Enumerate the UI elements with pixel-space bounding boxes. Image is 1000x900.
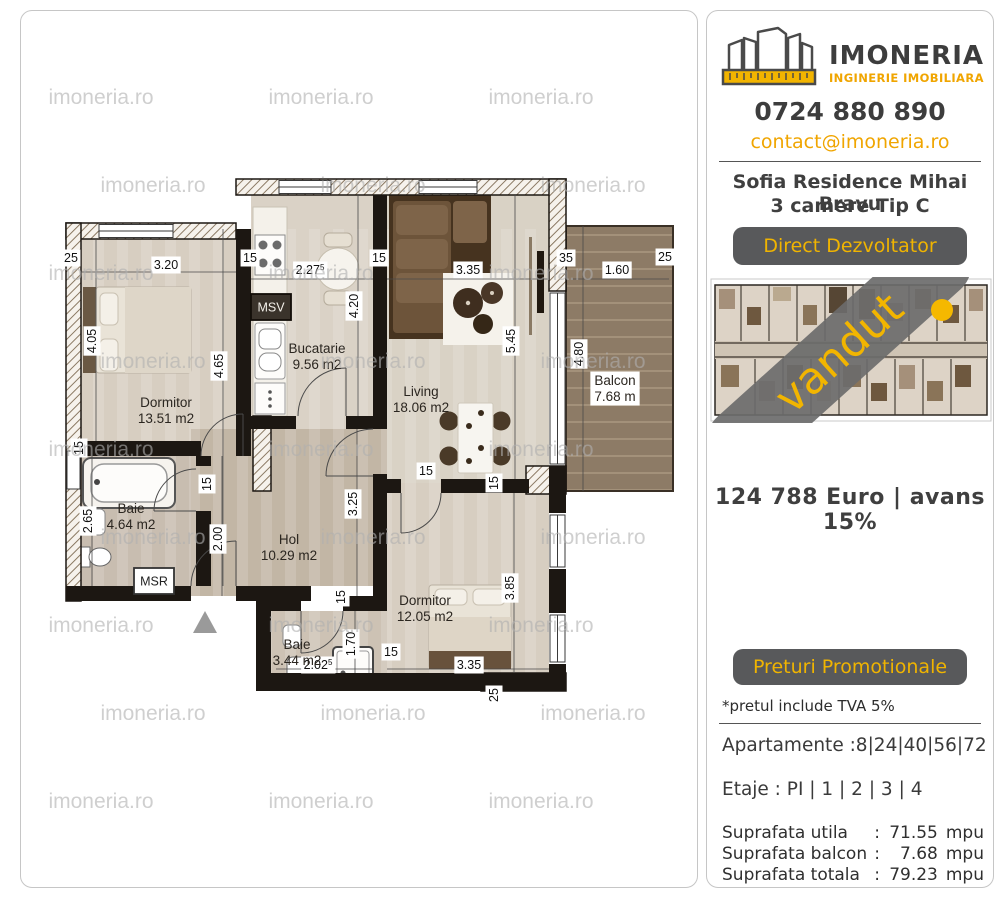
svg-text:15: 15 [372,251,386,265]
area-row: Suprafata balcon:7.68mpu [722,844,984,865]
watermark-text: imoneria.ro [488,438,593,461]
watermark-text: imoneria.ro [48,86,153,109]
floor-plan-drawing: 253.20152.275153.35351.60254.054.654.205… [21,11,696,886]
svg-text:1.60: 1.60 [605,263,629,277]
dim-label: 4.05 [84,326,101,355]
svg-text:3.25: 3.25 [346,492,360,516]
watermark-text: imoneria.ro [540,350,645,373]
flyer-root: { "brand": { "name": "IMONERIA", "taglin… [0,0,1000,900]
svg-text:15: 15 [384,645,398,659]
svg-text:3.20: 3.20 [154,258,178,272]
surface-areas-table: Suprafata utila:71.55mpuSuprafata balcon… [722,823,984,886]
svg-text:Balcon7.68 m: Balcon7.68 m [594,373,635,404]
dim-label: 3.20 [151,257,180,274]
dim-label: 15 [382,644,401,661]
svg-text:15: 15 [419,464,433,478]
watermark-text: imoneria.ro [100,350,205,373]
dim-label: 2.00 [210,524,227,553]
watermark-text: imoneria.ro [100,526,205,549]
watermark-text: imoneria.ro [540,526,645,549]
svg-text:15: 15 [334,590,348,604]
svg-text:15: 15 [243,251,257,265]
brand-logo: IMONERIA INGINERIE IMOBILIARA [707,23,993,93]
svg-text:2.65: 2.65 [81,509,95,533]
dim-label: 5.45 [503,326,520,355]
svg-text:Dormitor12.05 m2: Dormitor12.05 m2 [397,593,453,624]
promo-badge: Preturi Promotionale [733,649,967,685]
dim-label: 3.35 [453,262,482,279]
svg-text:25: 25 [658,250,672,264]
dim-label: 4.20 [346,291,363,320]
watermark-text: imoneria.ro [268,790,373,813]
svg-text:25: 25 [487,688,501,702]
watermark-text: imoneria.ro [48,614,153,637]
buildings-ruler-icon [721,25,817,87]
watermark-text: imoneria.ro [488,262,593,285]
watermark-text: imoneria.ro [320,702,425,725]
vat-note: *pretul include TVA 5% [722,697,895,715]
svg-text:4.65: 4.65 [212,354,226,378]
watermark-text: imoneria.ro [268,614,373,637]
apartments-line: Apartamente :8|24|40|56|72 [722,735,987,756]
dim-label: 15 [333,588,350,607]
svg-text:2.00: 2.00 [211,527,225,551]
watermark-text: imoneria.ro [488,86,593,109]
svg-text:3.35: 3.35 [457,658,481,672]
floor-plan-card: 253.20152.275153.35351.60254.054.654.205… [20,10,698,888]
brand-tagline: INGINERIE IMOBILIARA [829,71,984,85]
watermark-text: imoneria.ro [488,790,593,813]
dim-label: 3.25 [345,489,362,518]
svg-text:4.20: 4.20 [347,294,361,318]
tv-console [529,237,532,335]
divider [719,161,981,162]
watermark-text: imoneria.ro [48,790,153,813]
floors-line: Etaje : PI | 1 | 2 | 3 | 4 [722,779,922,800]
watermark-text: imoneria.ro [540,174,645,197]
watermark-text: imoneria.ro [320,174,425,197]
contact-email[interactable]: contact@imoneria.ro [707,131,993,153]
watermark-text: imoneria.ro [100,702,205,725]
wall-box-msv: MSV [251,294,291,320]
watermark-text: imoneria.ro [488,614,593,637]
watermark-text: imoneria.ro [48,262,153,285]
dim-label: 15 [241,250,260,267]
dim-label: 3.85 [502,573,519,602]
dim-label: 2.65 [80,506,97,535]
room-label: Balcon7.68 m [590,372,639,406]
dim-label: 15 [486,474,503,493]
dim-label: 15 [417,463,436,480]
dim-label: 4.65 [211,351,228,380]
svg-text:Dormitor13.51 m2: Dormitor13.51 m2 [138,395,194,426]
watermark-text: imoneria.ro [100,174,205,197]
dim-label: 3.35 [454,657,483,674]
room-label: Dormitor13.51 m2 [138,395,194,426]
svg-text:3.35: 3.35 [456,263,480,277]
watermark-text: imoneria.ro [268,86,373,109]
svg-text:MSR: MSR [140,575,168,589]
price-line: 124 788 Euro | avans 15% [707,485,993,535]
watermark-layer: imoneria.roimoneria.roimoneria.roimoneri… [48,86,645,813]
dim-label: 15 [199,475,216,494]
info-panel: IMONERIA INGINERIE IMOBILIARA 0724 880 8… [706,10,994,888]
watermark-text: imoneria.ro [540,702,645,725]
svg-text:MSV: MSV [257,301,285,315]
watermark-text: imoneria.ro [268,438,373,461]
divider [719,723,981,724]
direct-developer-badge: Direct Dezvoltator [733,227,967,265]
listing-subtitle: 3 camere Tip C [707,195,993,217]
watermark-text: imoneria.ro [320,526,425,549]
area-row: Suprafata totala:79.23mpu [722,865,984,886]
svg-text:5.45: 5.45 [504,329,518,353]
svg-text:15: 15 [200,477,214,491]
watermark-text: imoneria.ro [48,438,153,461]
wall-box-msr: MSR [134,568,174,594]
area-row: Suprafata utila:71.55mpu [722,823,984,844]
svg-text:3.85: 3.85 [503,576,517,600]
toilet-1 [81,547,111,567]
unit-marker-dot [931,299,953,321]
dim-label: 25 [486,686,503,705]
dim-label: 1.60 [602,262,631,279]
room-label: Dormitor12.05 m2 [397,593,453,624]
watermark-text: imoneria.ro [268,262,373,285]
dim-label: 25 [656,249,675,266]
phone-number: 0724 880 890 [707,97,993,126]
svg-text:15: 15 [487,476,501,490]
svg-text:4.05: 4.05 [85,329,99,353]
watermark-text: imoneria.ro [320,350,425,373]
building-overview-plan: vandut [709,277,993,423]
brand-name: IMONERIA [829,43,984,69]
